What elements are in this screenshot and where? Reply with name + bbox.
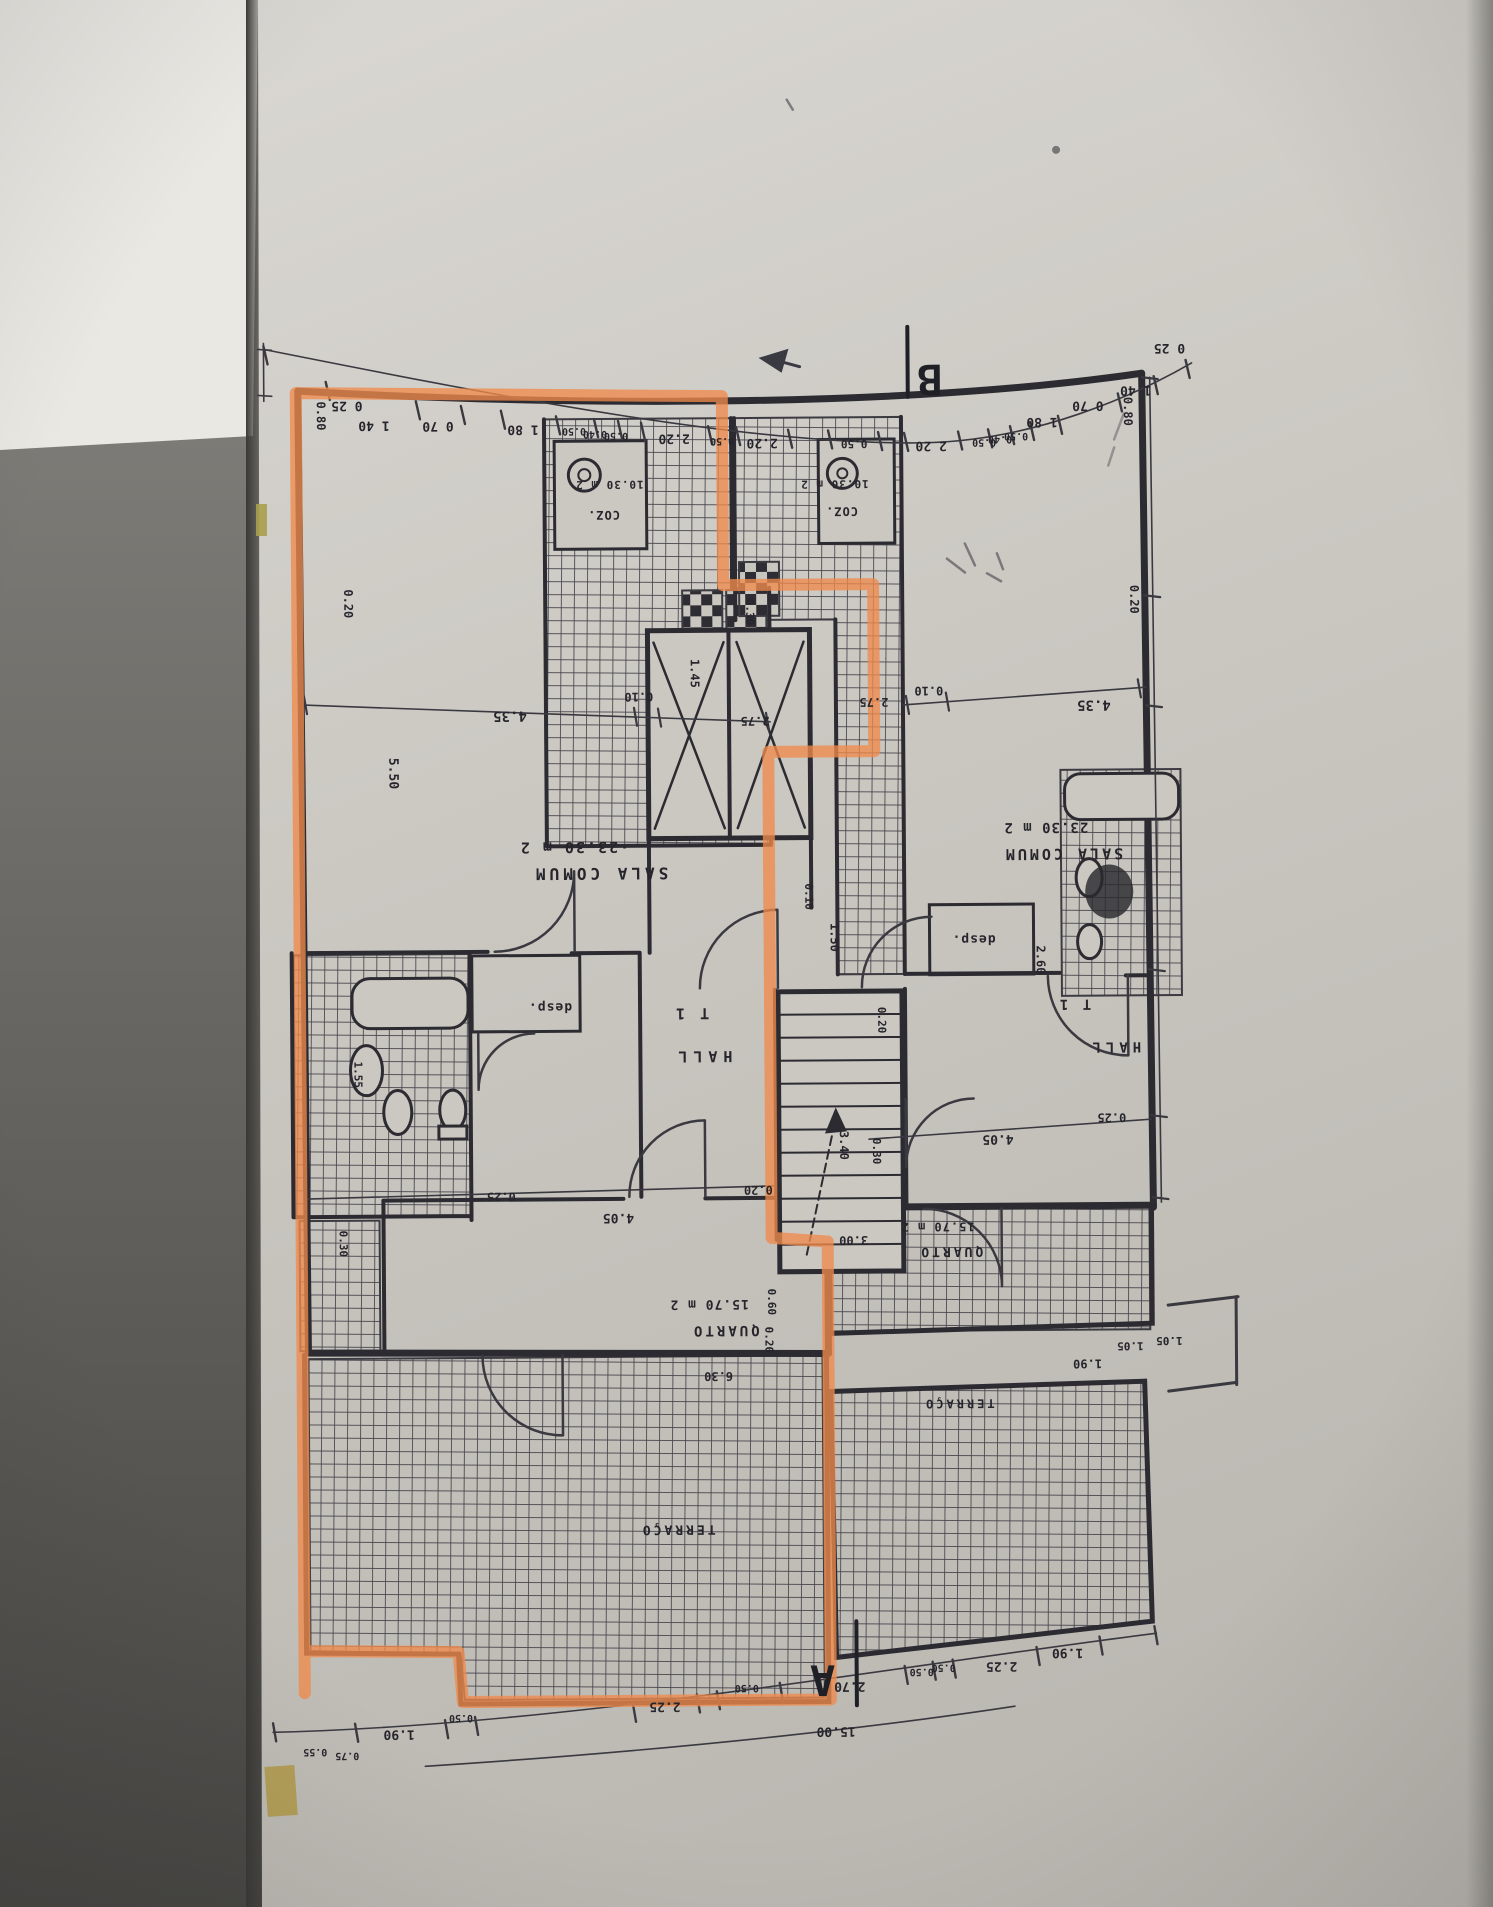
floorplan-svg: 0 251 400 701 800.500.400.502.200.502.20… (0, 0, 1493, 1907)
photographed-floorplan-page: 0 251 400 701 800.500.400.502.200.502.20… (0, 0, 1493, 1907)
vignette (0, 0, 1493, 1907)
